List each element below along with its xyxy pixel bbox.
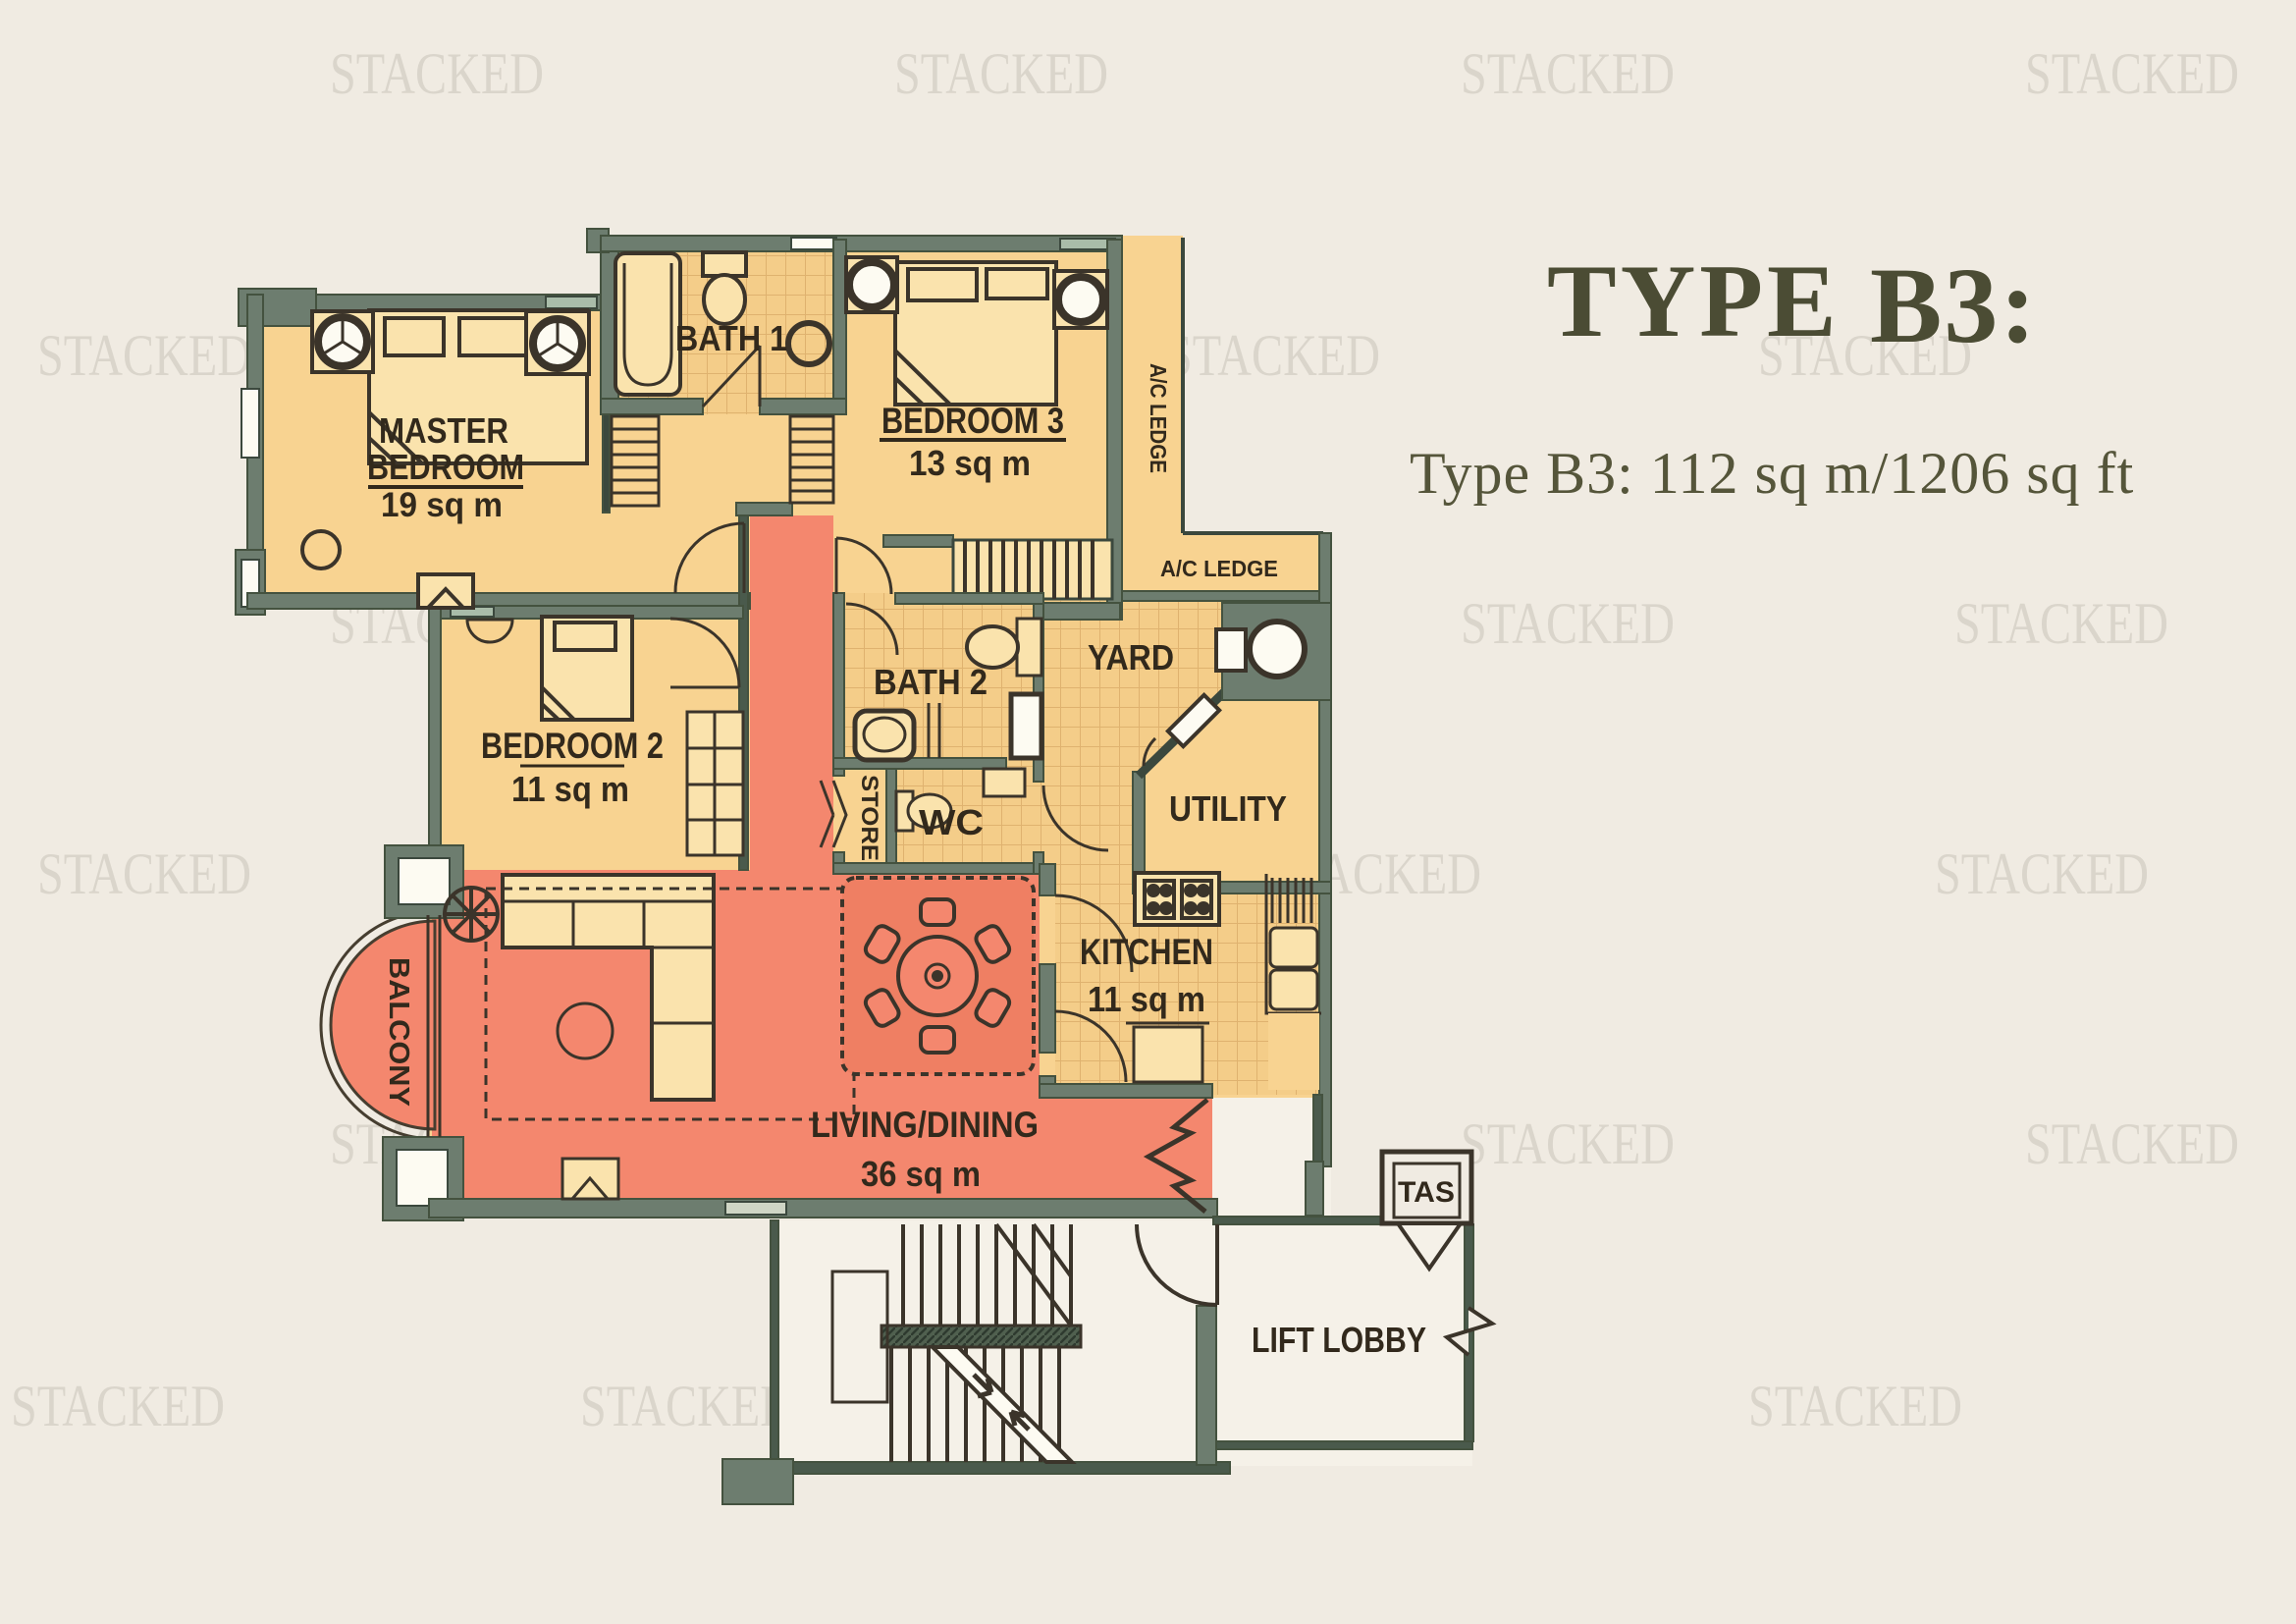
svg-text:KITCHEN: KITCHEN — [1080, 932, 1213, 972]
svg-text:UTILITY: UTILITY — [1169, 788, 1287, 829]
svg-text:STACKED: STACKED — [1461, 1111, 1675, 1176]
svg-text:A/C LEDGE: A/C LEDGE — [1146, 363, 1171, 473]
svg-text:STACKED: STACKED — [1935, 841, 2149, 906]
svg-text:BATH 2: BATH 2 — [874, 662, 988, 702]
svg-text:STACKED: STACKED — [1748, 1374, 1962, 1438]
svg-text:36 sq m: 36 sq m — [861, 1154, 981, 1194]
svg-text:STACKED: STACKED — [37, 841, 251, 906]
svg-text:Type B3: 112 sq m/1206 sq ft: Type B3: 112 sq m/1206 sq ft — [1410, 441, 2134, 506]
svg-text:STACKED: STACKED — [894, 41, 1108, 106]
svg-text:STACKED: STACKED — [2025, 41, 2239, 106]
svg-text:MASTER: MASTER — [379, 410, 508, 451]
svg-text:11 sq m: 11 sq m — [1088, 979, 1205, 1019]
svg-text:13 sq m: 13 sq m — [909, 443, 1031, 483]
svg-text:BEDROOM 2: BEDROOM 2 — [481, 726, 664, 766]
svg-text:STORE: STORE — [856, 775, 882, 861]
svg-text:BATH 1: BATH 1 — [675, 318, 787, 358]
svg-text:YARD: YARD — [1088, 637, 1174, 677]
svg-text:LIFT LOBBY: LIFT LOBBY — [1252, 1320, 1426, 1360]
svg-text:STACKED: STACKED — [37, 323, 251, 388]
svg-text:BALCONY: BALCONY — [383, 957, 414, 1107]
svg-text:STACKED: STACKED — [1166, 323, 1380, 388]
svg-text:BEDROOM: BEDROOM — [367, 447, 524, 487]
svg-text:A/C LEDGE: A/C LEDGE — [1160, 556, 1278, 581]
svg-text:11 sq m: 11 sq m — [511, 769, 629, 809]
svg-text:STACKED: STACKED — [1461, 591, 1675, 656]
svg-text:B3:: B3: — [1870, 245, 2038, 365]
svg-text:TAS: TAS — [1398, 1176, 1455, 1209]
svg-text:STACKED: STACKED — [1461, 41, 1675, 106]
svg-text:STACKED: STACKED — [2025, 1111, 2239, 1176]
svg-text:BEDROOM 3: BEDROOM 3 — [881, 401, 1064, 441]
svg-text:LIVING/DINING: LIVING/DINING — [811, 1105, 1039, 1145]
svg-text:STACKED: STACKED — [580, 1374, 794, 1438]
svg-text:TYPE: TYPE — [1547, 244, 1841, 358]
svg-text:STACKED: STACKED — [11, 1374, 225, 1438]
svg-text:STACKED: STACKED — [330, 41, 544, 106]
svg-text:STACKED: STACKED — [1954, 591, 2168, 656]
svg-text:19 sq m: 19 sq m — [381, 486, 503, 524]
svg-text:WC: WC — [919, 802, 984, 842]
